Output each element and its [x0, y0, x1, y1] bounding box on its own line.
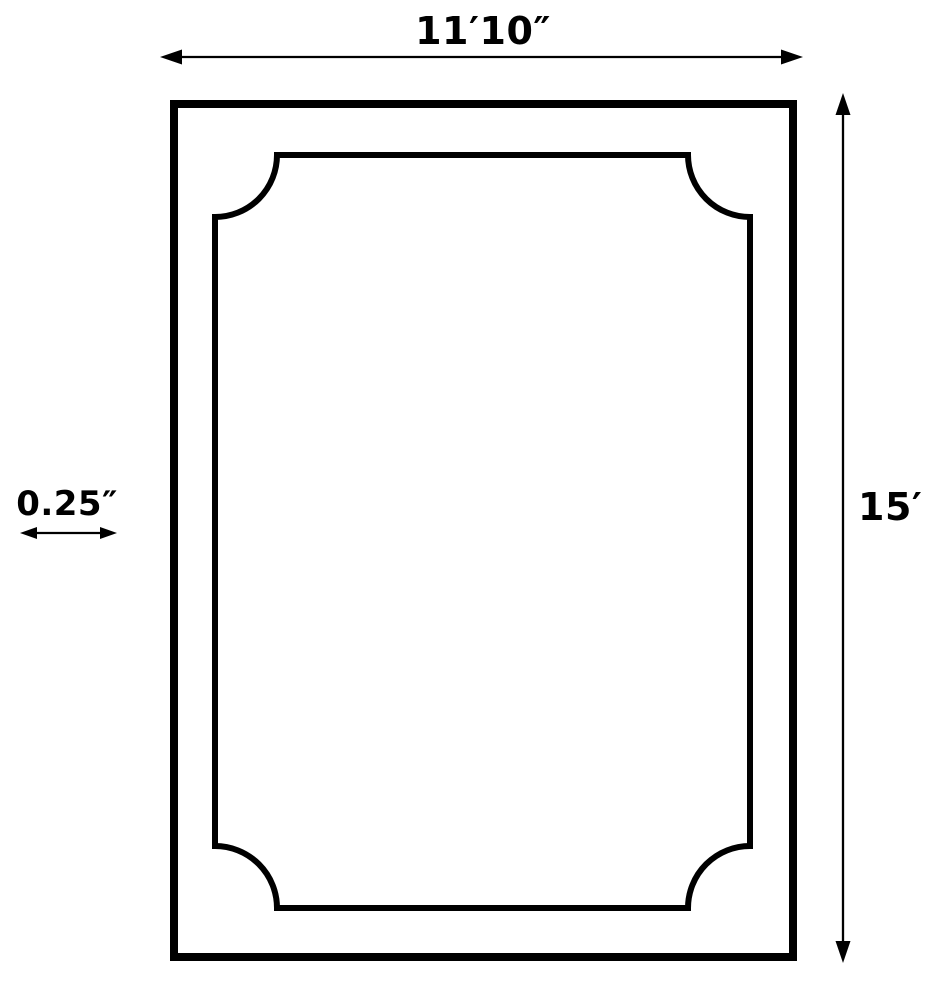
height-dimension-arrow-icon: [836, 93, 851, 963]
dimension-diagram: [0, 0, 932, 990]
thickness-dimension-label: 0.25″: [10, 487, 124, 521]
width-dimension-label: 11′10″: [333, 12, 633, 50]
diagram-canvas: 11′10″ 15′ 0.25″: [0, 0, 932, 990]
outer-rectangle: [174, 104, 793, 957]
thickness-dimension-arrow-icon: [20, 527, 117, 539]
height-dimension-label: 15′: [858, 488, 922, 526]
inner-scalloped-rectangle: [215, 155, 750, 908]
